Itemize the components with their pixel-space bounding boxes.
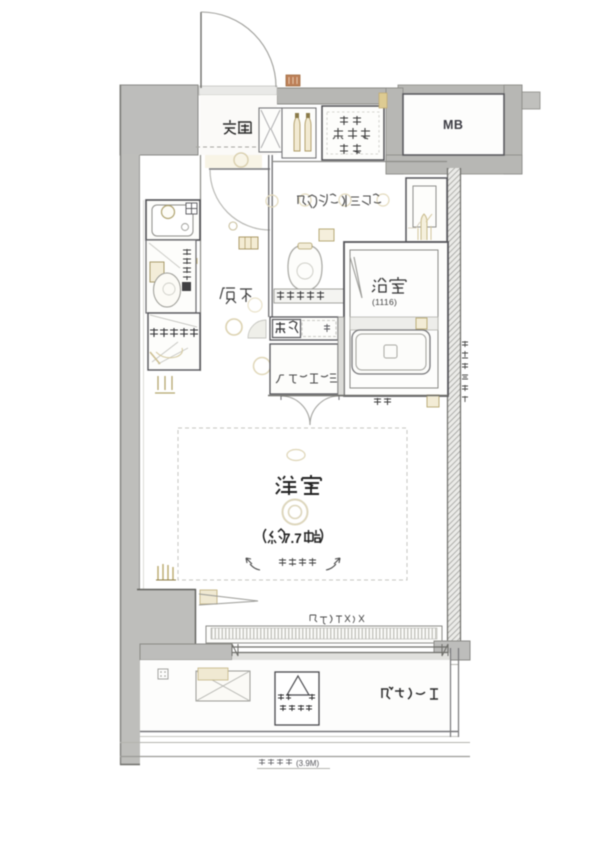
svg-text:(3.9M): (3.9M) <box>296 759 319 768</box>
svg-text:7.7: 7.7 <box>283 531 302 546</box>
svg-text:(1116): (1116) <box>372 297 397 307</box>
svg-text:MB: MB <box>443 118 463 132</box>
